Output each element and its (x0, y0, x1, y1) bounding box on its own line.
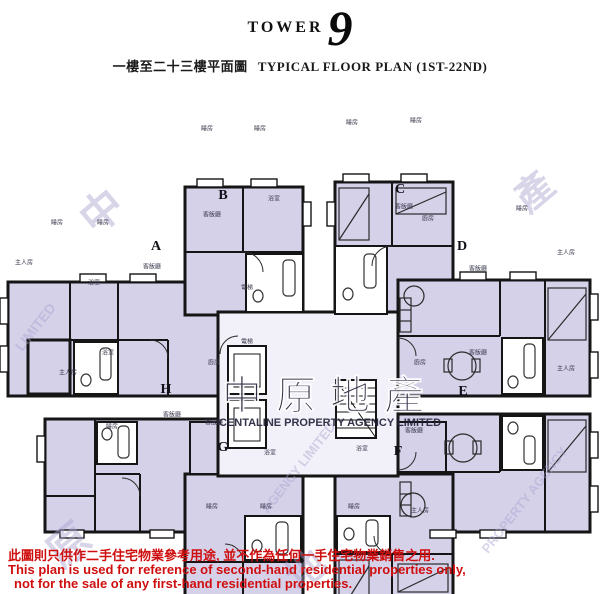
disclaimer-english-line1: This plan is used for reference of secon… (8, 563, 600, 577)
watermark-english: CENTALINE PROPERTY AGENCY LIMITED (219, 417, 441, 429)
sheet-header: TOWER 9 一樓至二十三樓平面圖TYPICAL FLOOR PLAN (1S… (0, 6, 600, 75)
diagonal-watermark-text: 中 (71, 180, 133, 243)
tower-word: TOWER (247, 19, 323, 37)
disclaimer-english-line2: not for the sale of any first-hand resid… (8, 577, 600, 591)
disclaimer-chinese: 此圖則只供作二手住宅物業參考用途, 並不作為任何一手住宅物業銷售之用. (8, 549, 600, 563)
tower-title: TOWER 9 (0, 6, 600, 50)
tower-number: 9 (328, 6, 353, 50)
floor-plan: 中原地產LIMITEDAGENCY LIMITEDPROPERTY AGENCY… (0, 84, 600, 554)
wing-F-kitchen (398, 422, 446, 474)
disclaimer: 此圖則只供作二手住宅物業參考用途, 並不作為任何一手住宅物業銷售之用. This… (8, 549, 600, 591)
watermark-chinese: 中原地產 (222, 374, 438, 418)
subtitle-chinese: 一樓至二十三樓平面圖 (113, 59, 248, 74)
center-watermark: 中原地產 CENTALINE PROPERTY AGENCY LIMITED (219, 374, 441, 429)
diagonal-watermark-text: 產 (506, 164, 563, 221)
floor-plan-drawing: 中原地產LIMITEDAGENCY LIMITEDPROPERTY AGENCY… (0, 84, 600, 594)
wing-A-ext (28, 340, 70, 394)
plan-subtitle: 一樓至二十三樓平面圖TYPICAL FLOOR PLAN (1ST-22ND) (0, 56, 600, 75)
subtitle-english: TYPICAL FLOOR PLAN (1ST-22ND) (258, 59, 488, 74)
